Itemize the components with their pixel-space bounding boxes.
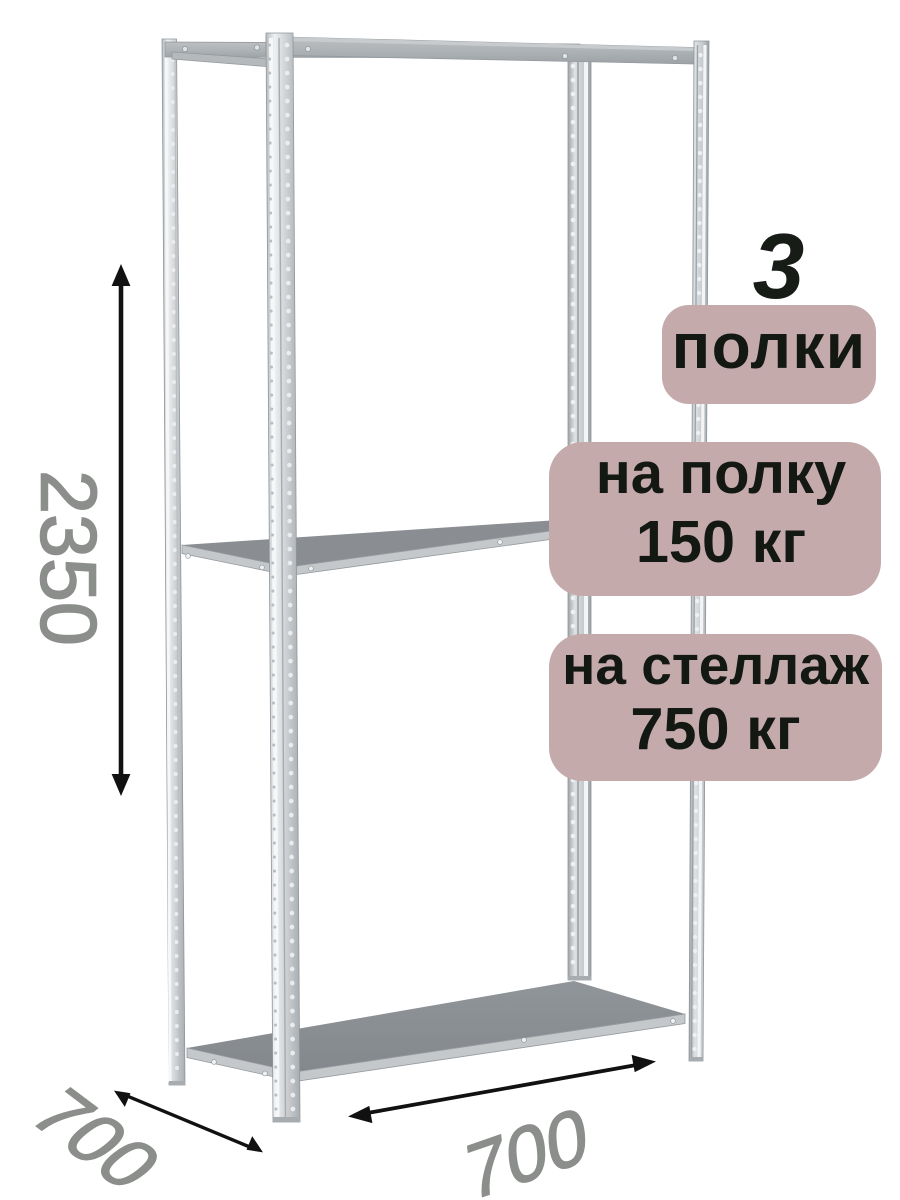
svg-text:2350: 2350 [25,470,114,646]
svg-text:700: 700 [13,1076,179,1200]
svg-text:700: 700 [462,1090,591,1200]
